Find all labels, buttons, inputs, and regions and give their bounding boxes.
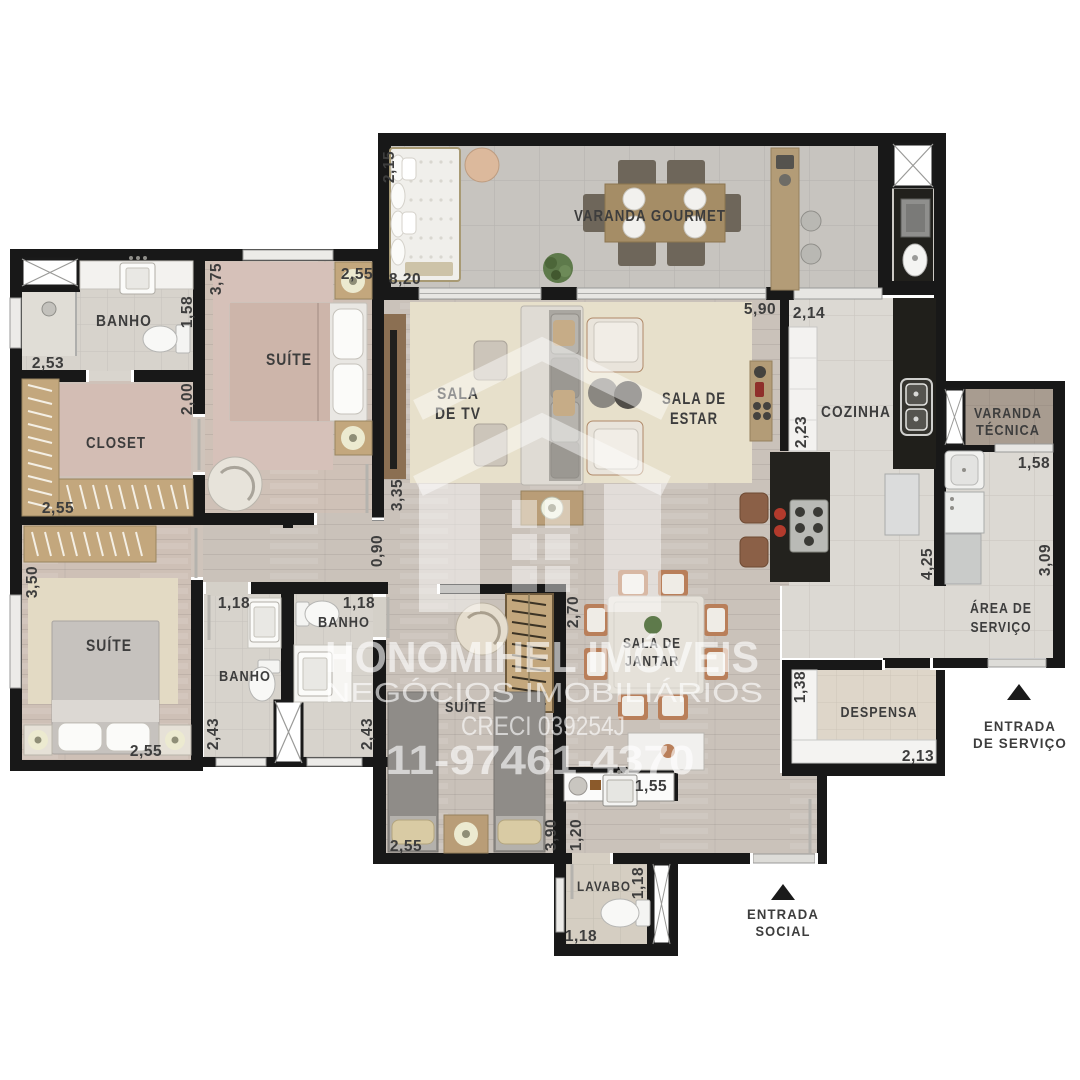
svg-text:ESTAR: ESTAR xyxy=(670,410,718,428)
svg-text:1,58: 1,58 xyxy=(1018,455,1050,472)
svg-text:DE SERVIÇO: DE SERVIÇO xyxy=(973,735,1067,751)
svg-text:8,20: 8,20 xyxy=(389,271,421,288)
svg-text:LAVABO: LAVABO xyxy=(577,879,631,894)
svg-text:3,09: 3,09 xyxy=(1037,544,1054,576)
svg-text:1,38: 1,38 xyxy=(792,671,809,703)
svg-text:5,90: 5,90 xyxy=(744,301,776,318)
svg-text:HONOMIHEL IMÓVEIS: HONOMIHEL IMÓVEIS xyxy=(325,632,759,682)
svg-text:VARANDA GOURMET: VARANDA GOURMET xyxy=(574,208,726,225)
svg-text:ENTRADA: ENTRADA xyxy=(984,718,1056,734)
svg-text:2,55: 2,55 xyxy=(42,500,74,517)
svg-text:TÉCNICA: TÉCNICA xyxy=(976,422,1040,439)
svg-text:CLOSET: CLOSET xyxy=(86,435,146,452)
svg-text:COZINHA: COZINHA xyxy=(821,404,891,421)
svg-text:BANHO: BANHO xyxy=(219,669,271,685)
svg-text:SOCIAL: SOCIAL xyxy=(756,923,811,939)
svg-text:11-97461-4370: 11-97461-4370 xyxy=(386,737,695,783)
svg-text:2,13: 2,13 xyxy=(902,748,934,765)
svg-text:SUÍTE: SUÍTE xyxy=(266,350,312,369)
svg-text:1,18: 1,18 xyxy=(343,595,375,612)
svg-text:SERVIÇO: SERVIÇO xyxy=(971,619,1032,636)
svg-text:3,90: 3,90 xyxy=(543,819,560,851)
svg-text:2,43: 2,43 xyxy=(205,718,222,750)
svg-text:SALA DE: SALA DE xyxy=(662,390,726,408)
svg-text:1,58: 1,58 xyxy=(179,296,196,328)
svg-text:2,00: 2,00 xyxy=(179,383,196,415)
svg-text:2,43: 2,43 xyxy=(359,718,376,750)
svg-text:2,14: 2,14 xyxy=(793,305,825,322)
svg-text:SUÍTE: SUÍTE xyxy=(86,636,132,655)
svg-text:ÁREA DE: ÁREA DE xyxy=(970,600,1032,617)
svg-text:2,55: 2,55 xyxy=(390,838,422,855)
svg-text:3,75: 3,75 xyxy=(208,263,225,295)
svg-text:2,55: 2,55 xyxy=(341,266,373,283)
svg-text:2,53: 2,53 xyxy=(32,355,64,372)
svg-text:ENTRADA: ENTRADA xyxy=(747,906,819,922)
svg-text:1,18: 1,18 xyxy=(630,867,647,899)
svg-text:DESPENSA: DESPENSA xyxy=(841,705,918,721)
svg-text:4,25: 4,25 xyxy=(919,548,936,580)
svg-text:1,18: 1,18 xyxy=(565,928,597,945)
svg-text:0,90: 0,90 xyxy=(369,535,386,567)
svg-text:3,35: 3,35 xyxy=(389,479,406,511)
svg-text:1,20: 1,20 xyxy=(568,819,585,851)
svg-text:BANHO: BANHO xyxy=(96,313,152,330)
svg-text:2,15: 2,15 xyxy=(381,151,398,183)
svg-text:2,55: 2,55 xyxy=(130,743,162,760)
svg-text:VARANDA: VARANDA xyxy=(974,406,1042,422)
svg-text:2,23: 2,23 xyxy=(793,416,810,448)
svg-text:BANHO: BANHO xyxy=(318,615,370,631)
svg-text:2,70: 2,70 xyxy=(565,596,582,628)
svg-text:3,50: 3,50 xyxy=(24,566,41,598)
svg-text:1,18: 1,18 xyxy=(218,595,250,612)
svg-text:NEGÓCIOS IMOBILIÁRIOS: NEGÓCIOS IMOBILIÁRIOS xyxy=(325,677,763,708)
